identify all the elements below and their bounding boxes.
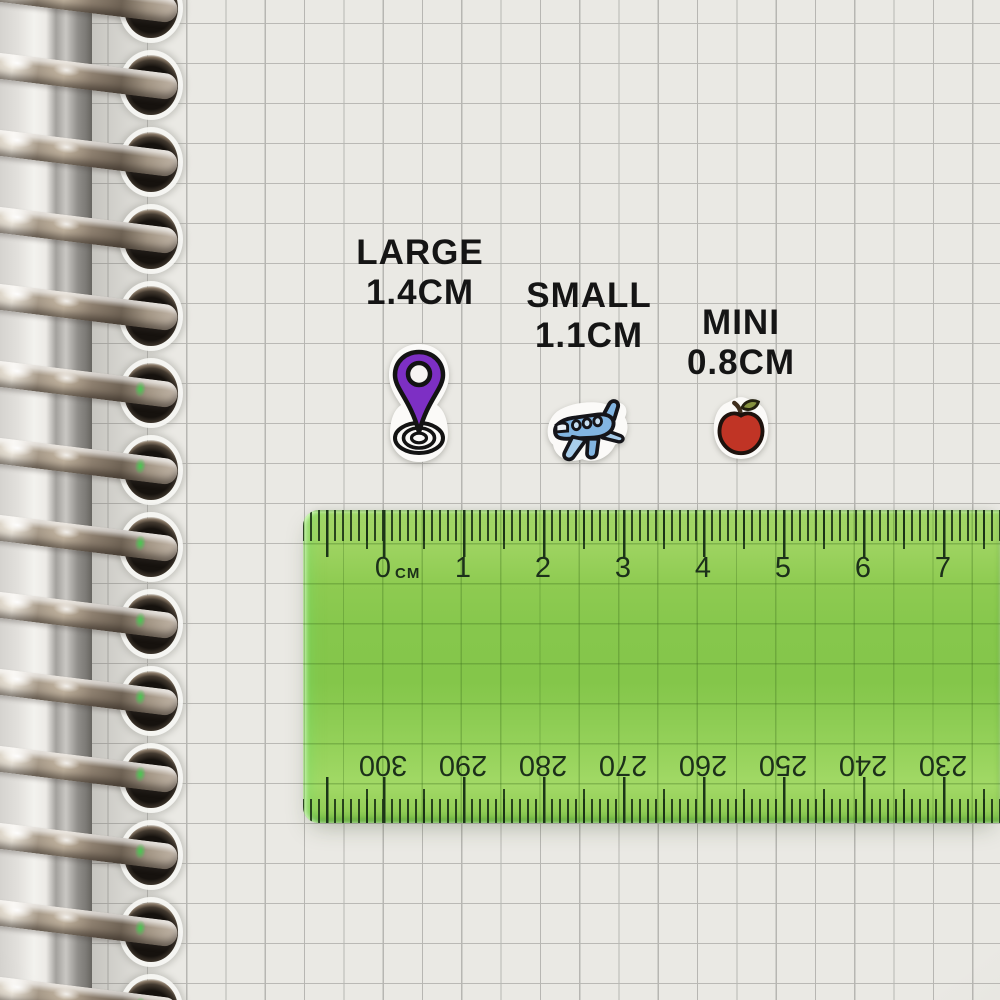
- spiral-ring: [0, 662, 210, 740]
- label-mini-size: 0.8CM: [671, 343, 811, 383]
- ruler-bottom-ticks-cm: [303, 777, 1000, 823]
- ruler-number-bottom: 270: [578, 748, 668, 781]
- spiral-ring: [0, 0, 210, 47]
- label-large-size: 1.4CM: [350, 273, 490, 313]
- label-mini: MINI 0.8CM: [671, 303, 811, 383]
- spiral-ring: [0, 585, 210, 663]
- notebook-photo: LARGE 1.4CM SMALL 1.1CM MINI 0.8CM: [0, 0, 1000, 1000]
- ruler-number-bottom: 290: [418, 748, 508, 781]
- ruler-top-ticks-cm: [303, 510, 1000, 557]
- apple-sticker: [712, 395, 770, 463]
- spiral-ring: [0, 970, 210, 1000]
- spiral-ring: [0, 893, 210, 971]
- spiral-ring: [0, 739, 210, 817]
- ruler-number-top: 6: [833, 552, 893, 585]
- ruler: 0 1 2 3 4 5 6 7 CM 300 290 280 270 260 2…: [303, 510, 1000, 823]
- spiral-ring: [0, 431, 210, 509]
- ruler-number-top: 7: [913, 552, 973, 585]
- ruler-number-bottom: 240: [818, 748, 908, 781]
- spiral-ring: [0, 46, 210, 124]
- spiral-ring: [0, 277, 210, 355]
- ruler-number-bottom: 260: [658, 748, 748, 781]
- label-small-title: SMALL: [519, 276, 659, 316]
- ruler-number-bottom: 300: [338, 748, 428, 781]
- airplane-sticker: [543, 398, 631, 464]
- spiral-ring: [0, 200, 210, 278]
- ruler-number-top: 4: [673, 552, 733, 585]
- label-small-size: 1.1CM: [519, 316, 659, 356]
- ring-wire: [0, 0, 179, 24]
- ruler-number-bottom: 230: [898, 748, 988, 781]
- spiral-ring: [0, 123, 210, 201]
- spiral-ring: [0, 354, 210, 432]
- label-mini-title: MINI: [671, 303, 811, 343]
- spiral-ring: [0, 508, 210, 586]
- label-small: SMALL 1.1CM: [519, 276, 659, 356]
- ruler-number-bottom: 280: [498, 748, 588, 781]
- location-pin-sticker: [386, 342, 452, 464]
- ruler-number-top: 1: [433, 552, 493, 585]
- spiral-ring: [0, 816, 210, 894]
- ruler-number-bottom: 250: [738, 748, 828, 781]
- ruler-unit-label: CM: [395, 565, 420, 582]
- ruler-number-top: 5: [753, 552, 813, 585]
- ruler-number-top: 2: [513, 552, 573, 585]
- label-large: LARGE 1.4CM: [350, 233, 490, 313]
- label-large-title: LARGE: [350, 233, 490, 273]
- ruler-number-top: 3: [593, 552, 653, 585]
